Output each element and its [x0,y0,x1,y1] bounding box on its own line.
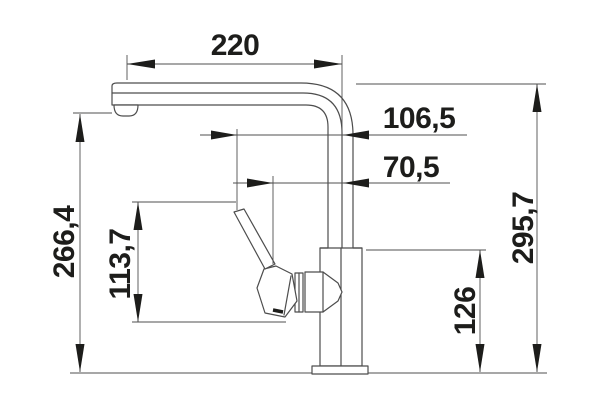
arrowhead-up [533,84,542,112]
dimension-label: 126 [449,287,482,336]
handle-lever [234,209,275,269]
arrowhead-down [476,344,485,372]
dimension-label: 113,7 [104,229,137,300]
arrowhead-up [134,202,143,230]
dimension-label: 295,7 [507,192,540,265]
arrowhead-left [211,131,237,140]
arrowhead-left [127,60,155,69]
faucet-dimension-drawing: 220 106,5 70,5 266,4 113,7 [0,0,600,400]
spout-and-riser-body [112,83,362,366]
dimension-label: 106,5 [383,102,456,135]
arrowhead-up [76,114,85,142]
aerator-nozzle [114,105,138,116]
dimension-label: 70,5 [383,151,439,184]
spout-mid-line [112,93,342,248]
arrowhead-up [476,250,485,278]
arrowhead-right [314,60,342,69]
dimension-lever-height: 113,7 [104,202,286,322]
faucet-outline [112,83,368,374]
dimension-label: 220 [211,29,260,62]
arrowhead-down [533,344,542,372]
arrowhead-left [247,179,273,188]
base-flange [312,366,368,374]
dimension-body-height: 126 [366,250,486,372]
dimension-outlet-height: 266,4 [48,113,112,372]
arrowhead-down [76,344,85,372]
handle-logo-mark [273,310,283,312]
dimension-label: 266,4 [48,205,81,278]
drawing-canvas: 220 106,5 70,5 266,4 113,7 [0,0,600,400]
